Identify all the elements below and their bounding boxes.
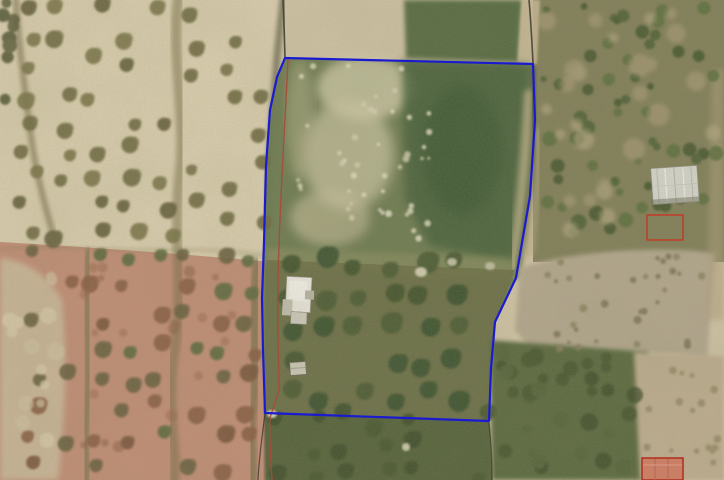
- photo-grain-fine: [0, 0, 724, 480]
- red-roof-building: [642, 458, 683, 480]
- photo-grain: [0, 0, 724, 480]
- aerial-photo-map[interactable]: [0, 0, 724, 480]
- map-canvas[interactable]: [0, 0, 724, 480]
